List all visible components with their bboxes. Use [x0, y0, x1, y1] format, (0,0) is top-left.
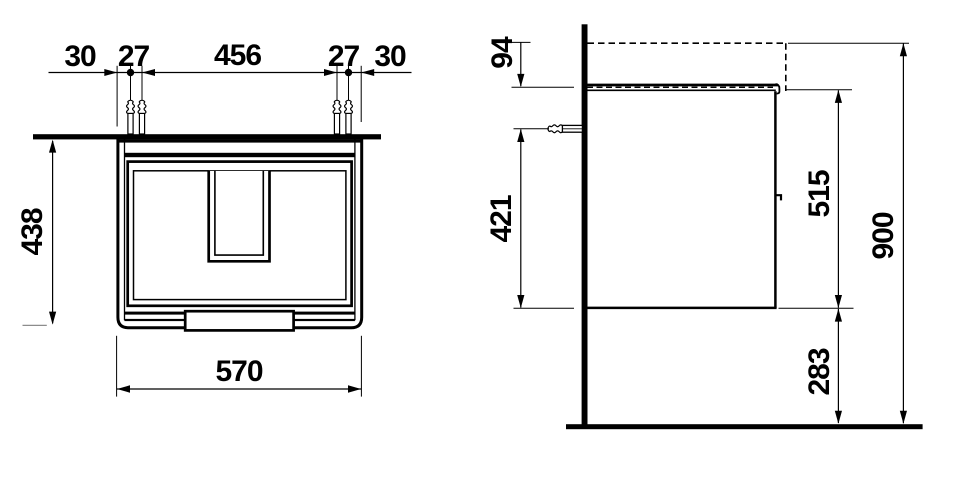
dim-label-900: 900: [869, 212, 899, 259]
dim-label-570: 570: [215, 357, 262, 387]
cabinet-side: [588, 91, 782, 308]
arrow-up-icon: [835, 309, 842, 322]
countertop-front: [33, 134, 381, 139]
arrow-down-icon: [517, 74, 524, 87]
wall-anchor-icon: [548, 125, 585, 133]
arrow-left-icon: [117, 385, 130, 392]
dim-label-456: 456: [214, 41, 261, 71]
arrow-down-icon: [900, 411, 907, 424]
arrow-right-icon: [348, 385, 361, 392]
arrow-up-icon: [517, 129, 524, 142]
dim-label-30-left: 30: [64, 42, 95, 72]
front-view: [23, 66, 412, 397]
dim-label-30-right: 30: [374, 42, 405, 72]
dim-label-27-right: 27: [328, 42, 359, 72]
dim-label-515: 515: [805, 170, 835, 217]
technical-drawing-canvas: 30 27 456 27 30 438 570 94 421 515 900 2…: [0, 0, 975, 479]
dim-label-94: 94: [488, 37, 518, 68]
mounting-pin-icon: [333, 100, 341, 134]
arrow-down-icon: [835, 411, 842, 424]
floor-line: [566, 424, 923, 429]
top-rail: [125, 153, 355, 157]
arrow-up-icon: [900, 43, 907, 56]
arrow-up-icon: [49, 140, 56, 153]
mounting-pin-icon: [138, 100, 146, 134]
siphon-cutout-outer: [209, 171, 270, 261]
dim-421: [517, 129, 524, 308]
dim-label-283: 283: [805, 348, 835, 395]
cabinet-top-edge: [118, 139, 362, 142]
arrow-down-icon: [49, 312, 56, 325]
arrow-up-icon: [835, 90, 842, 103]
arrow-down-icon: [835, 295, 842, 308]
handle-recess: [185, 311, 293, 330]
arrow-down-icon: [517, 295, 524, 308]
mounting-pin-icon: [127, 100, 135, 134]
dim-label-421: 421: [487, 195, 517, 242]
arrow-right-icon: [104, 69, 117, 76]
dim-label-438: 438: [18, 208, 48, 255]
side-view: [512, 24, 923, 429]
mounting-pin-icon: [345, 100, 353, 134]
side-extension-lines: [512, 42, 910, 308]
dim-label-27-left: 27: [118, 42, 149, 72]
dim-900: [900, 43, 907, 424]
worktop-side: [585, 84, 779, 94]
arrow-left-icon: [361, 69, 374, 76]
